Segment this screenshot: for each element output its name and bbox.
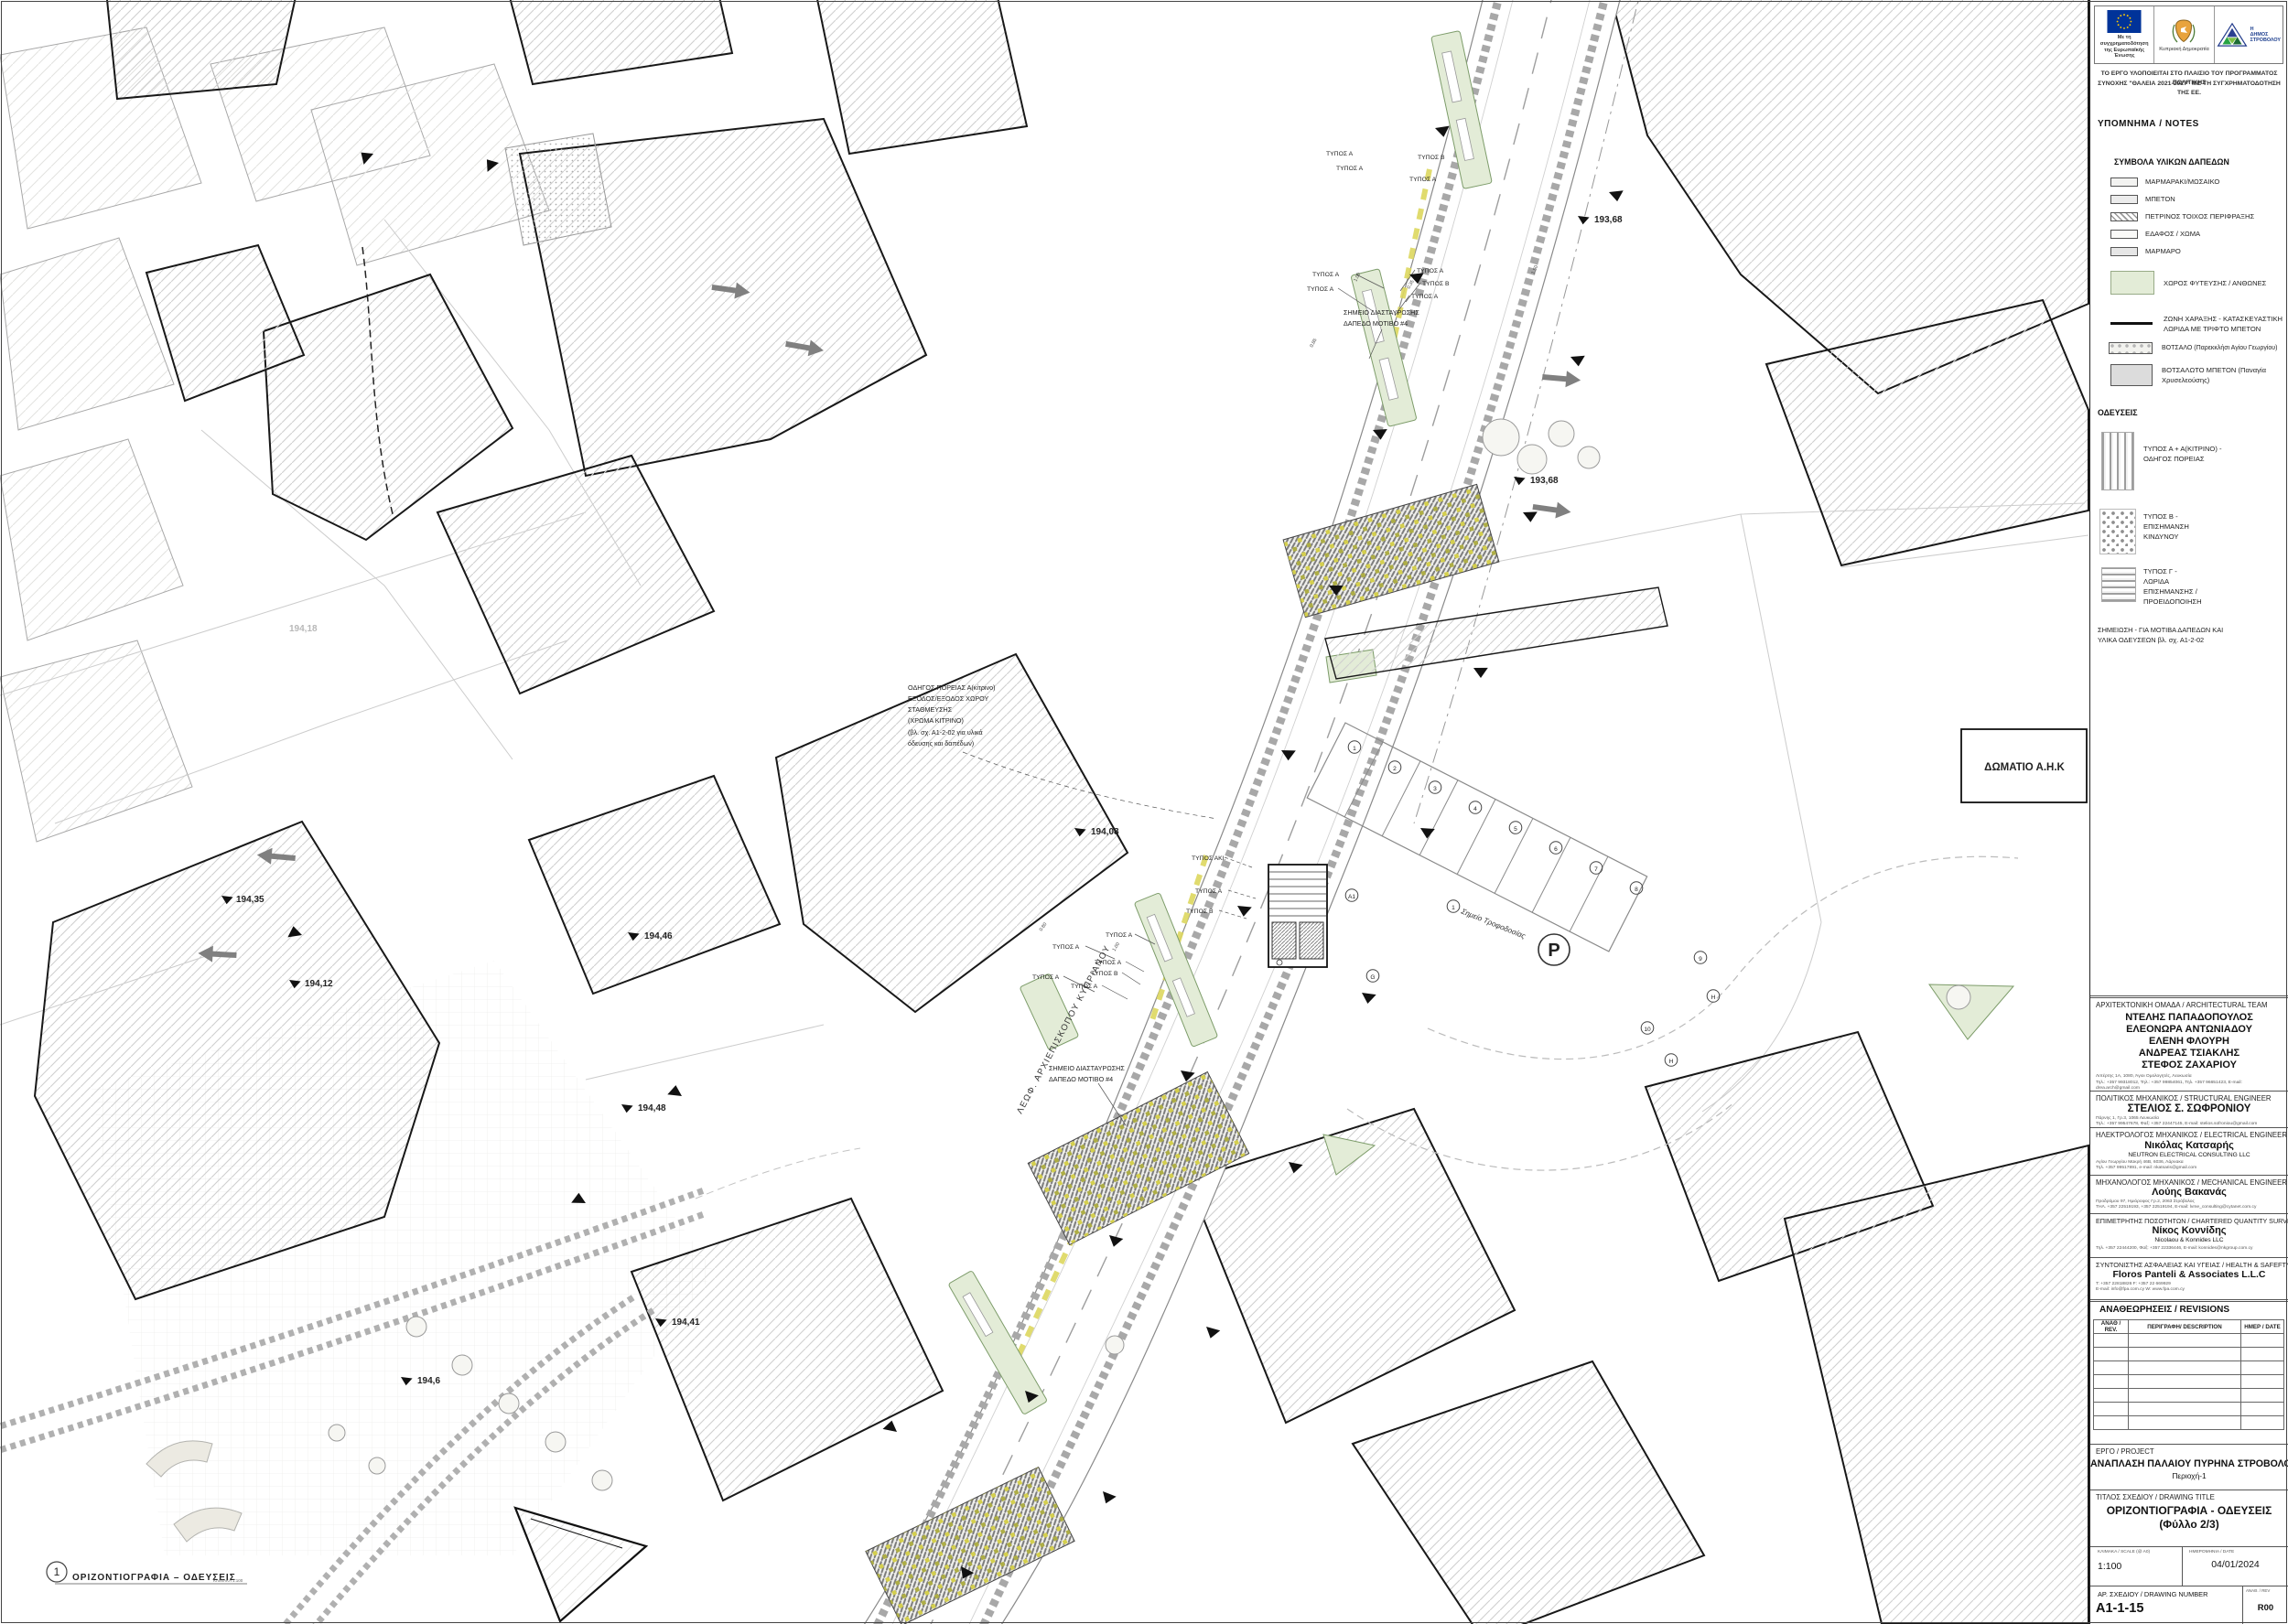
swatch-planting: [2110, 271, 2154, 295]
map-label: 194,41: [672, 1317, 700, 1328]
logo-strip: Με τη συγχρηματοδότησητης Ευρωπαϊκής Ένω…: [2094, 5, 2283, 64]
map-label: ΔΑΠΕΔΟ ΜΟΤΙΒΟ #4: [1049, 1075, 1113, 1083]
map-label: 6: [1554, 846, 1558, 853]
project-label: ΕΡΓΟ / PROJECT: [2096, 1447, 2154, 1456]
team-member: ΝΤΕΛΗΣ ΠΑΠΑΔΟΠΟΥΛΟΣ: [2090, 1012, 2288, 1023]
map-label: ΔΑΠΕΔΟ ΜΟΤΙΒΟ #4: [1344, 319, 1408, 328]
pconc-label-line1: ΒΟΤΣΑΛΩΤΟ ΜΠΕΤΟΝ (Παναγία: [2162, 366, 2266, 374]
electrical-contact-line2: Τηλ. +357 99517891, e-mail: nkatsaris@gm…: [2096, 1166, 2286, 1171]
map-label: ΤΥΠΟΣ Α: [1195, 888, 1223, 895]
map-label: ΟΡΙΖΟΝΤΙΟΓΡΑΦΙΑ – ΟΔΕΥΣΕΙΣ: [72, 1573, 236, 1583]
map-label: 194,46: [644, 931, 673, 941]
drawing-title-line2: (Φύλλο 2/3): [2090, 1518, 2288, 1531]
map-label: ΣΤΑΘΜΕΥΣΗΣ: [908, 705, 953, 714]
scale-value: 1:100: [2098, 1561, 2121, 1572]
map-label: ΤΥΠΟΣ Α: [1417, 268, 1444, 274]
team-header: ΑΡΧΙΤΕΚΤΟΝΙΚΗ ΟΜΑΔΑ / ARCHITECTURAL TEAM: [2096, 1001, 2267, 1009]
revisions-col-desc: ΠΕΡΙΓΡΑΦΗ/ DESCRIPTION: [2129, 1320, 2241, 1334]
map-label: ΤΥΠΟΣ Β: [1422, 281, 1450, 287]
swatch-pebble-concrete: [2110, 364, 2153, 386]
project-subtitle: Περιοχή-1: [2090, 1471, 2288, 1480]
revision-row: [2094, 1375, 2284, 1389]
date-label: ΗΜΕΡΟΜΗΝΙΑ / DATE: [2189, 1550, 2234, 1554]
map-label: 3: [1433, 786, 1437, 792]
strovolos-logo-icon: [2217, 22, 2248, 48]
title-block-panel: Με τη συγχρηματοδότησητης Ευρωπαϊκής Ένω…: [2089, 0, 2288, 1624]
swatch-zone-line: [2110, 322, 2153, 325]
map-label: ΤΥΠΟΣ Α: [1095, 960, 1122, 966]
map-label: ΣΗΜΕΙΟ ΔΙΑΣΤΑΥΡΩΣΗΣ: [1344, 308, 1419, 317]
pconc-label-line2: Χρυσελεούσης): [2162, 376, 2209, 384]
divider: [2090, 1213, 2288, 1214]
map-label: 1: [1353, 746, 1356, 752]
map-label: 1.00: [1112, 941, 1121, 952]
project-title: ΑΝΑΠΛΑΣΗ ΠΑΛΑΙΟΥ ΠΥΡΗΝΑ ΣΤΡΟΒΟΛΟΥ: [2090, 1458, 2288, 1469]
rev-value: R00: [2242, 1603, 2288, 1613]
routes-title: ΟΔΕΥΣΕΙΣ: [2098, 408, 2138, 417]
divider: [2090, 995, 2288, 998]
eu-flag-icon: [2107, 10, 2142, 33]
map-label: ΤΥΠΟΣ Β: [1418, 155, 1445, 161]
revision-row: [2094, 1361, 2284, 1375]
material-label: ΠΕΤΡΙΝΟΣ ΤΟΙΧΟΣ ΠΕΡΙΦΡΑΞΗΣ: [2145, 212, 2254, 220]
swatch-mosaic: [2110, 177, 2138, 187]
strovolos-line1: Η: [2250, 27, 2254, 32]
map-label: 2: [1393, 766, 1397, 772]
stage-structure: [515, 1508, 646, 1621]
hs-header: ΣΥΝΤΟΝΙΣΤΗΣ ΑΣΦΑΛΕΙΑΣ ΚΑΙ ΥΓΕΙΑΣ / HEALT…: [2096, 1261, 2288, 1269]
route-c-line3: ΕΠΙΣΗΜΑΝΣΗΣ /: [2143, 587, 2197, 596]
map-label: 194,48: [638, 1103, 666, 1113]
map-label: 1: [54, 1565, 60, 1578]
material-label: ΜΑΡΜΑΡΟ: [2145, 247, 2181, 255]
strovolos-line2: ΔΗΜΟΣ: [2250, 32, 2269, 38]
team-member: ΣΤΕΦΟΣ ΖΑΧΑΡΙΟΥ: [2090, 1059, 2288, 1070]
map-label: 5: [1514, 826, 1517, 833]
qs-contact-line1: Τηλ. +357 22444200, Φαξ: +357 22336446, …: [2096, 1246, 2286, 1252]
revisions-col-date: ΗΜΕΡ / DATE: [2241, 1320, 2284, 1334]
route-c-line4: ΠΡΟΕΙΔΟΠΟΙΗΣΗ: [2143, 597, 2202, 606]
divider: [2090, 1490, 2288, 1490]
zone-label-line2: ΛΩΡΙΔΑ ΜΕ ΤΡΙΦΤΟ ΜΠΕΤΟΝ: [2164, 325, 2261, 333]
map-label: 0.80: [1039, 921, 1049, 932]
divider: [2090, 1175, 2288, 1176]
map-label: 1: [1452, 905, 1455, 911]
qs-firm: Nicolaou & Konnides LLC: [2090, 1237, 2288, 1243]
map-label: 194,6: [417, 1376, 440, 1386]
map-label: 8: [1635, 887, 1638, 893]
route-b-line3: ΚΙΝΔΥΝΟΥ: [2143, 532, 2178, 541]
map-label: ΕΞΟΔΟΣ/ΕΞΟΔΟΣ ΧΩΡΟΥ: [908, 694, 988, 703]
map-label: 193,68: [1530, 476, 1559, 486]
legend-note-line2: ΥΛΙΚΑ ΟΔΕΥΣΕΩΝ βλ. σχ. Α1-2-02: [2098, 636, 2204, 644]
revision-row: [2094, 1334, 2284, 1348]
team-member: ΑΝΔΡΕΑΣ ΤΣΙΑΚΛΗΣ: [2090, 1048, 2288, 1059]
map-label: ΤΥΠΟΣ Α: [1326, 151, 1354, 157]
map-label: ΤΥΠΟΣ Α: [1409, 177, 1437, 183]
drawing-title-line1: ΟΡΙΖΟΝΤΙΟΓΡΑΦΙΑ - ΟΔΕΥΣΕΙΣ: [2090, 1504, 2288, 1517]
divider: [2090, 1586, 2288, 1586]
map-label: 10: [1644, 1027, 1651, 1033]
swatch-pebble: [2109, 342, 2153, 354]
map-label: ΔΩΜΑΤΙΟ Α.Η.Κ: [1984, 762, 2065, 773]
divider: [2090, 1091, 2288, 1092]
map-label: ΤΥΠΟΣ Α: [1052, 944, 1080, 951]
hs-contact-line2: E-mail: info@fpa.com.cy W: www.fpa.com.c…: [2096, 1287, 2286, 1293]
revision-row: [2094, 1416, 2284, 1430]
strovolos-logo-cell: ΗΔΗΜΟΣΣΤΡΟΒΟΛΟΥ: [2214, 6, 2283, 63]
revision-row: [2094, 1403, 2284, 1416]
qs-header: ΕΠΙΜΕΤΡΗΤΗΣ ΠΟΣΟΤΗΤΩΝ / CHARTERED QUANTI…: [2096, 1217, 2288, 1225]
electrical-name: Νικόλας Κατσαρής: [2090, 1140, 2288, 1151]
electrical-firm: NEUTRON ELECTRICAL CONSULTING LLC: [2090, 1152, 2288, 1158]
mechanical-name: Λούης Βακανάς: [2090, 1187, 2288, 1198]
team-member: ΕΛΕΟΝΩΡΑ ΑΝΤΩΝΙΑΔΟΥ: [2090, 1024, 2288, 1035]
map-label: 0.85: [1309, 338, 1318, 349]
pebble-label: ΒΟΤΣΑΛΟ (Παρεκκλήσι Αγίου Γεωργίου): [2162, 345, 2277, 351]
map-label: A1: [1348, 894, 1355, 900]
team-contact-line1: Λιπέρτης 1Α, 1080, Άγιοι Ομολογητές, Λευ…: [2096, 1074, 2286, 1080]
route-a-line1: ΤΥΠΟΣ Α + Α(ΚΙΤΡΙΝΟ) -: [2143, 445, 2222, 453]
map-label: 194,12: [305, 979, 333, 989]
drawing-number-value: A1-1-15: [2096, 1601, 2143, 1616]
map-label: ΟΔΗΓΟΣ ΠΟΡΕΙΑΣ Α(κίτρινο): [908, 683, 996, 692]
swatch-route-c: [2101, 567, 2136, 602]
eu-caption-line1: Με τη συγχρηματοδότηση: [2100, 35, 2149, 47]
cyprus-emblem-icon: [2170, 17, 2197, 45]
map-label: 194,08: [1091, 827, 1119, 837]
material-label: ΜΑΡΜΑΡΑΚΙ/ΜΩΣΑΙΚΟ: [2145, 177, 2219, 186]
map-label: ΤΥΠΟΣ Α: [1307, 286, 1334, 293]
divider: [2090, 1546, 2288, 1547]
map-label: G: [1370, 974, 1375, 981]
divider: [2090, 1127, 2288, 1128]
map-label: ΤΥΠΟΣ Α: [1071, 984, 1098, 990]
map-label: ΤΥΠΟΣ Α: [1336, 166, 1364, 172]
map-label: 7: [1594, 866, 1598, 873]
revisions-title: ΑΝΑΘΕΩΡΗΣΕΙΣ / REVISIONS: [2099, 1305, 2229, 1315]
map-label: 4: [1473, 806, 1477, 812]
route-c-line1: ΤΥΠΟΣ Γ -: [2143, 567, 2177, 575]
legend-note-line1: ΣΗΜΕΙΩΣΗ - ΓΙΑ ΜΟΤΙΒΑ ΔΑΠΕΔΩΝ ΚΑΙ: [2098, 626, 2223, 634]
zone-label-line1: ΖΩΝΗ ΧΑΡΑΞΗΣ - ΚΑΤΑΣΚΕΥΑΣΤΙΚΗ: [2164, 315, 2283, 323]
swatch-beton: [2110, 195, 2138, 204]
electrical-header: ΗΛΕΚΤΡΟΛΟΓΟΣ ΜΗΧΑΝΙΚΟΣ / ELECTRICAL ENGI…: [2096, 1131, 2287, 1139]
map-label: ΤΥΠΟΣ ΑΚΙ.: [1192, 855, 1226, 862]
structural-name: ΣΤΕΛΙΟΣ Σ. ΣΩΦΡΟΝΙΟΥ: [2090, 1103, 2288, 1114]
swatch-stone-wall: [2110, 212, 2138, 221]
map-label: ΚΛΙΜΑΚΑ 1:100: [213, 1578, 243, 1583]
swatch-soil: [2110, 230, 2138, 239]
map-label: (ΧΡΩΜΑ ΚΙΤΡΙΝΟ): [908, 716, 964, 725]
eu-logo-cell: Με τη συγχρηματοδότησητης Ευρωπαϊκής Ένω…: [2095, 6, 2153, 63]
cyprus-logo-cell: Κυπριακή Δημοκρατία: [2153, 6, 2213, 63]
planting-label: ΧΩΡΟΣ ΦΥΤΕΥΣΗΣ / ΑΝΘΩΝΕΣ: [2164, 279, 2266, 287]
route-c-line2: ΛΩΡΙΔΑ: [2143, 577, 2169, 586]
scale-label: ΚΛΙΜΑΚΑ / SCALE (@ A0): [2098, 1550, 2150, 1554]
revision-row: [2094, 1348, 2284, 1361]
map-label: Σημείο Τροφοδοσίας: [1459, 907, 1527, 941]
map-label: (βλ. σχ. Α1-2-02 για υλικά: [908, 728, 983, 737]
map-label: 194,35: [236, 895, 264, 905]
map-label: P: [1548, 941, 1560, 961]
divider: [2090, 1299, 2288, 1302]
route-b-line1: ΤΥΠΟΣ Β -: [2143, 512, 2178, 521]
structural-header: ΠΟΛΙΤΙΚΟΣ ΜΗΧΑΝΙΚΟΣ / STRUCTURAL ENGINEE…: [2096, 1094, 2272, 1102]
drawing-title-label: ΤΙΤΛΟΣ ΣΧΕΔΙΟΥ / DRAWING TITLE: [2096, 1493, 2215, 1501]
materials-title: ΣΥΜΒΟΛΑ ΥΛΙΚΩΝ ΔΑΠΕΔΩΝ: [2114, 157, 2229, 167]
funding-text-line2: ΣΥΝΟΧΗΣ "ΘΑΛΕΙΑ 2021-2027" ΜΕ ΤΗ ΣΥΓΧΡΗΜ…: [2096, 80, 2283, 98]
revisions-table: ΑΝΑΘ / REV. ΠΕΡΙΓΡΑΦΗ/ DESCRIPTION ΗΜΕΡ …: [2093, 1319, 2284, 1430]
map-label: 193,68: [1594, 215, 1623, 225]
map-label: ΤΥΠΟΣ Α: [1312, 272, 1340, 278]
mechanical-header: ΜΗΧΑΝΟΛΟΓΟΣ ΜΗΧΑΝΙΚΟΣ / MECHANICAL ENGIN…: [2096, 1178, 2287, 1187]
drawing-sheet: 193,68193,68194,18194,35194,46194,12194,…: [0, 0, 2288, 1624]
divider: [2090, 1444, 2288, 1445]
map-label: H: [1669, 1059, 1674, 1065]
legend-title: ΥΠΟΜΝΗΜΑ / NOTES: [2098, 119, 2199, 129]
map-label: ΤΥΠΟΣ Α: [1411, 294, 1439, 300]
map-label: ΤΥΠΟΣ Α: [1106, 932, 1133, 939]
revisions-col-rev: ΑΝΑΘ / REV.: [2094, 1320, 2129, 1334]
map-label: ΤΥΠΟΣ Β: [1091, 971, 1118, 977]
revision-row: [2094, 1389, 2284, 1403]
swatch-marble: [2110, 247, 2138, 256]
site-plan: 193,68193,68194,18194,35194,46194,12194,…: [0, 0, 2288, 1624]
map-label: H: [1711, 995, 1716, 1001]
map-label: ΤΥΠΟΣ Β: [1186, 909, 1214, 915]
hs-name: Floros Panteli & Associates L.L.C: [2090, 1269, 2288, 1280]
route-b-line2: ΕΠΙΣΗΜΑΝΣΗ: [2143, 522, 2189, 531]
mechanical-contact-line2: ΤΗΛ. +357 22519193, +357 22519194, E-mai…: [2096, 1205, 2286, 1210]
date-value: 04/01/2024: [2182, 1559, 2288, 1570]
map-label: όδευσης και δαπέδων): [908, 739, 974, 747]
swatch-route-b: [2099, 509, 2136, 554]
rev-label: ΑΝΑΘ. / REV: [2246, 1588, 2270, 1593]
cyprus-caption: Κυπριακή Δημοκρατία: [2159, 47, 2209, 53]
drawing-number-label: ΑΡ. ΣΧΕΔΙΟΥ / DRAWING NUMBER: [2098, 1590, 2207, 1598]
strovolos-line3: ΣΤΡΟΒΟΛΟΥ: [2250, 38, 2281, 43]
map-label: 9: [1699, 956, 1702, 963]
material-label: ΕΔΑΦΟΣ / ΧΩΜΑ: [2145, 230, 2200, 238]
map-label: ΣΗΜΕΙΟ ΔΙΑΣΤΑΥΡΩΣΗΣ: [1049, 1064, 1125, 1072]
map-label: 194,18: [289, 624, 318, 634]
map-label: ΤΥΠΟΣ Α: [1032, 974, 1060, 981]
divider: [2090, 1257, 2288, 1258]
eu-caption-line2: της Ευρωπαϊκής Ένωσης: [2104, 48, 2144, 59]
team-member: ΕΛΕΝΗ ΦΛΟΥΡΗ: [2090, 1036, 2288, 1047]
swatch-route-a: [2101, 432, 2134, 490]
route-a-line2: ΟΔΗΓΟΣ ΠΟΡΕΙΑΣ: [2143, 455, 2205, 463]
material-label: ΜΠΕΤΟΝ: [2145, 195, 2175, 203]
qs-name: Νίκος Κοννίδης: [2090, 1225, 2288, 1236]
map-label: ΛΕΩΦ. ΑΡΧΙΕΠΙΣΚΟΠΟΥ ΚΥΠΡΙΑΝΟΥ: [1015, 943, 1113, 1115]
